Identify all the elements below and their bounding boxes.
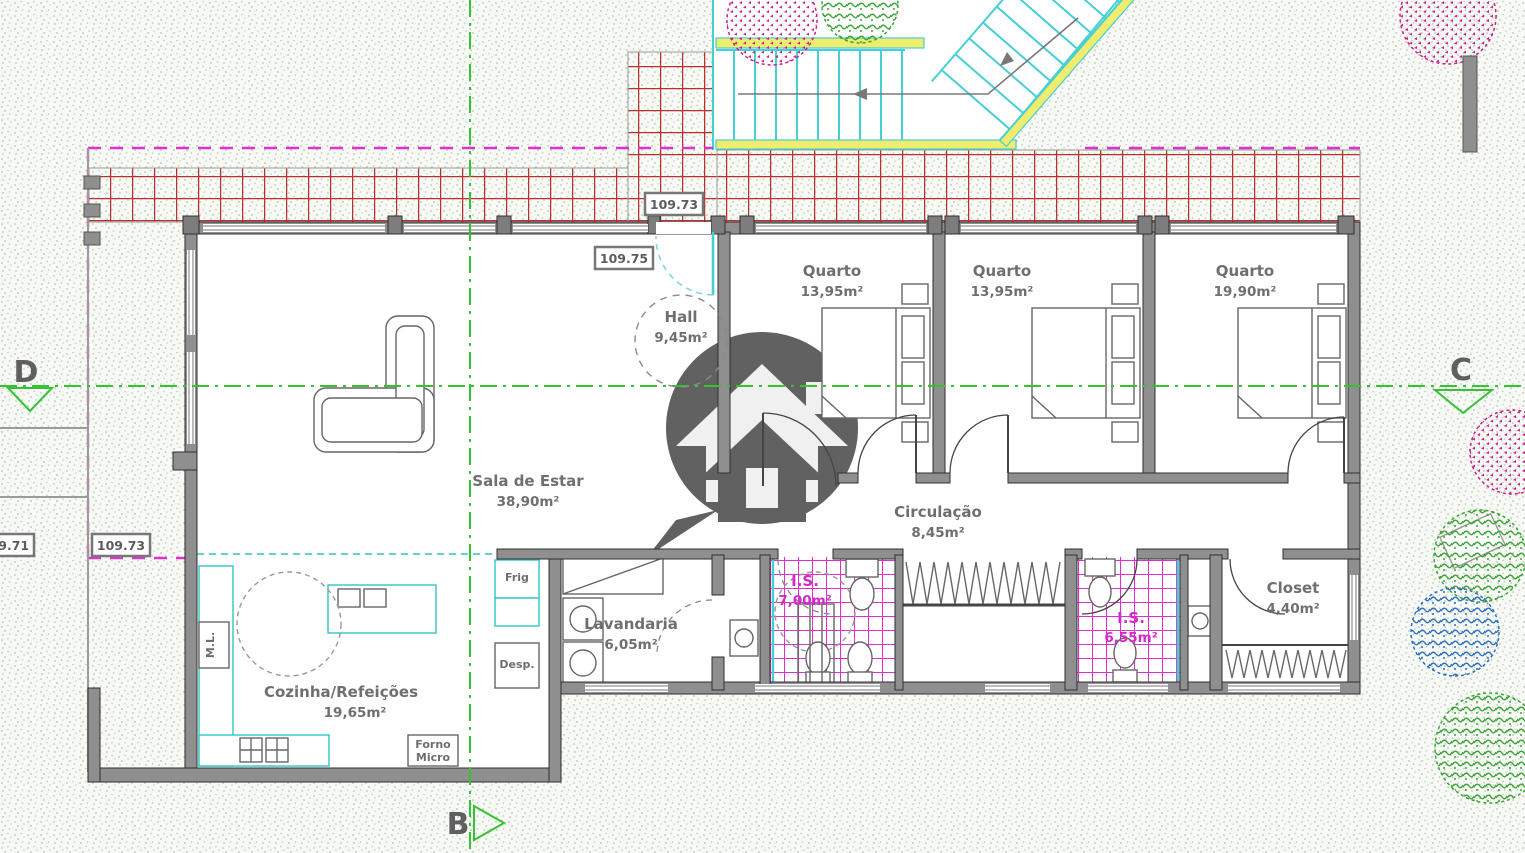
gate-posts	[84, 176, 100, 245]
svg-text:13,95m²: 13,95m²	[801, 284, 864, 300]
axis-label-d: D	[14, 355, 39, 390]
room-label-hall: Hall	[665, 308, 698, 326]
level-left-outer: 109.71	[0, 534, 34, 556]
label-micro: Micro	[416, 751, 451, 764]
svg-text:19,90m²: 19,90m²	[1214, 284, 1277, 300]
svg-text:8,45m²: 8,45m²	[911, 525, 964, 541]
fridge-box	[495, 560, 539, 626]
room-label-is2: I.S.	[1117, 609, 1145, 627]
svg-text:19,65m²: 19,65m²	[324, 705, 387, 721]
level-entry: 109.75	[595, 247, 653, 269]
svg-text:13,95m²: 13,95m²	[971, 284, 1034, 300]
svg-text:109.73: 109.73	[97, 538, 145, 553]
svg-text:9,45m²: 9,45m²	[654, 330, 707, 346]
svg-text:6,05m²: 6,05m²	[604, 637, 657, 653]
axis-label-c: C	[1450, 353, 1472, 388]
bed-quarto1	[822, 284, 930, 442]
floor-plan-drawing: D C B 109.73 109.75 109.71 109.73 Quarto…	[0, 0, 1525, 853]
svg-text:109.75: 109.75	[600, 251, 648, 266]
level-terrace: 109.73	[645, 193, 703, 215]
room-label-sala: Sala de Estar	[472, 472, 584, 490]
svg-text:4,40m²: 4,40m²	[1266, 601, 1319, 617]
svg-text:109.73: 109.73	[650, 197, 698, 212]
room-label-closet: Closet	[1267, 579, 1320, 597]
blue-tree-icon	[1411, 588, 1499, 676]
room-label-quarto2: Quarto	[973, 262, 1031, 280]
label-forno: Forno	[415, 738, 451, 751]
level-left-inner: 109.73	[92, 534, 150, 556]
room-label-quarto1: Quarto	[803, 262, 861, 280]
label-desp: Desp.	[499, 658, 534, 671]
label-ml: M.L.	[204, 632, 217, 658]
bed-quarto2	[1032, 284, 1140, 442]
room-label-quarto3: Quarto	[1216, 262, 1274, 280]
room-label-cozinha: Cozinha/Refeições	[264, 683, 418, 701]
svg-text:38,90m²: 38,90m²	[497, 494, 560, 510]
stair-yellow-band-bottom	[716, 140, 1016, 149]
svg-text:109.71: 109.71	[0, 538, 29, 553]
room-label-circulacao: Circulação	[894, 503, 982, 521]
label-frig: Frig	[505, 571, 529, 584]
floor-plan-canvas: D C B 109.73 109.75 109.71 109.73 Quarto…	[0, 0, 1525, 853]
axis-label-b: B	[447, 807, 470, 842]
room-label-is1: I.S.	[791, 572, 819, 590]
room-label-lavandaria: Lavandaria	[584, 615, 678, 633]
svg-text:6,55m²: 6,55m²	[1104, 630, 1157, 646]
svg-text:7,00m²: 7,00m²	[778, 593, 831, 609]
site-wall-segment	[1463, 56, 1477, 152]
